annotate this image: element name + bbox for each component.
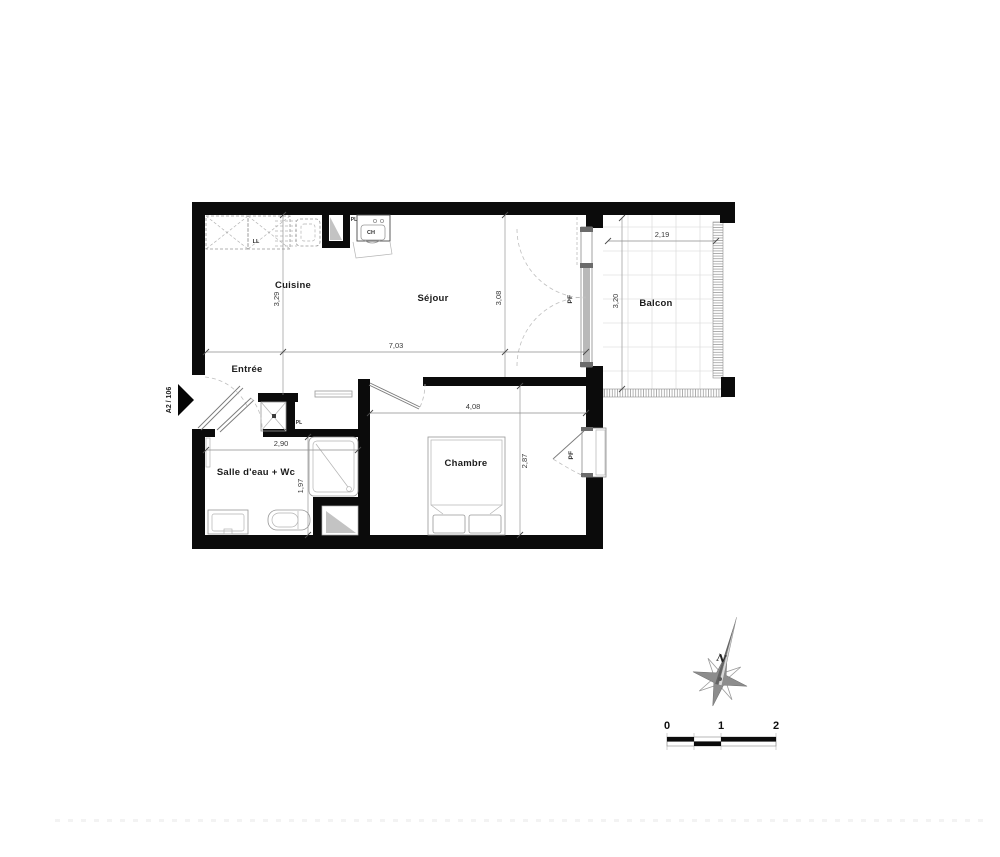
footer-watermark <box>55 819 985 822</box>
scale-bar: 0 1 2 <box>664 720 779 750</box>
duct-hatch-triangle <box>330 217 342 240</box>
dim-salle-eau-width: 2,90 <box>274 439 289 448</box>
washbasin <box>208 510 248 534</box>
pillow-left <box>433 515 465 533</box>
dim-living-width: 7,03 <box>389 341 404 350</box>
dim-chambre-width: 4,08 <box>466 402 481 411</box>
label-entry-closet: PL <box>296 420 302 426</box>
shower-drain <box>347 487 352 492</box>
wall-right-upper <box>586 202 603 228</box>
label-chambre-window: PF <box>568 451 575 460</box>
room-label-balcon: Balcon <box>639 298 672 309</box>
dimension-ticks <box>203 212 719 538</box>
wall-top <box>192 202 735 215</box>
sejour-window <box>517 217 593 367</box>
wall-right-lower <box>586 477 603 549</box>
dimension-lines <box>203 212 719 538</box>
wall-left-lower <box>192 430 205 549</box>
pillow-right <box>469 515 501 533</box>
scale-segment-2 <box>694 742 721 747</box>
radiator-bathroom <box>206 438 210 467</box>
kitchen-sink-bowl <box>301 224 315 241</box>
entry-closet <box>261 402 286 431</box>
dim-sejour-depth: 3,08 <box>494 291 503 306</box>
unit-label: A2 / 106 <box>166 387 173 414</box>
balcony-corner-post <box>721 377 735 397</box>
bed <box>428 437 505 535</box>
shower <box>309 437 358 496</box>
entry-closet-wall-side <box>286 393 295 433</box>
room-label-entree: Entrée <box>231 364 262 375</box>
compass-rose: N <box>678 608 769 720</box>
room-label-salle-eau: Salle d'eau + Wc <box>217 467 295 478</box>
kitchen-sink <box>296 219 320 246</box>
wall-bath-top-left <box>192 429 215 437</box>
label-water-heater: CH <box>367 230 375 236</box>
label-washing-machine: LL <box>253 239 260 245</box>
wall-balcony-corner <box>720 202 735 223</box>
entrance-arrow <box>178 384 194 416</box>
floor-plan-drawing: Cuisine Séjour Balcon Entrée Salle d'eau… <box>0 0 1000 857</box>
bath-duct-wall-side <box>313 497 322 549</box>
room-label-sejour: Séjour <box>417 293 448 304</box>
wall-bottom <box>192 535 603 549</box>
wall-bath-chambre <box>358 379 370 549</box>
wall-left-upper <box>192 202 205 375</box>
bathroom-door <box>217 398 262 432</box>
window-glazing <box>583 268 590 362</box>
sink-drainer <box>275 221 297 246</box>
wall-sejour-chambre <box>423 377 586 386</box>
scale-tick-0: 0 <box>664 720 670 732</box>
room-label-cuisine: Cuisine <box>275 280 311 291</box>
scale-segment-3 <box>721 737 776 742</box>
dim-balcon-width: 2,19 <box>655 230 670 239</box>
bedroom-door <box>369 383 425 409</box>
dim-salle-eau-depth: 1,97 <box>296 479 305 494</box>
dim-cuisine-depth: 3,29 <box>272 292 281 307</box>
entrance-door <box>198 377 247 430</box>
label-kitchen-closet: PL <box>351 217 357 223</box>
kitchen-counter <box>206 216 320 249</box>
closet-symbol <box>272 414 276 418</box>
duct-hatch-triangle-2 <box>326 511 356 533</box>
chambre-window <box>553 427 606 477</box>
scale-tick-2: 2 <box>773 720 779 732</box>
closet-door-open <box>353 242 392 258</box>
scale-tick-1: 1 <box>718 720 724 732</box>
label-sejour-window: PF <box>567 295 574 304</box>
wall-bath-top-right <box>263 429 360 437</box>
radiator-sejour <box>315 391 352 397</box>
dim-chambre-depth: 2,87 <box>520 454 529 469</box>
floor-plan-page: Cuisine Séjour Balcon Entrée Salle d'eau… <box>0 0 1000 857</box>
basin-tap <box>224 529 232 534</box>
water-heater-closet <box>353 215 392 258</box>
kitchen-duct <box>322 213 350 248</box>
wall-right-middle <box>586 366 603 428</box>
bath-duct <box>322 506 358 535</box>
scale-segment-1 <box>667 737 694 742</box>
toilet <box>268 510 310 530</box>
room-label-chambre: Chambre <box>445 458 488 469</box>
entrance-marker: A2 / 106 <box>166 384 194 416</box>
walls <box>192 202 735 549</box>
dim-balcon-depth: 3,20 <box>611 294 620 309</box>
bed-blanket <box>431 440 502 505</box>
